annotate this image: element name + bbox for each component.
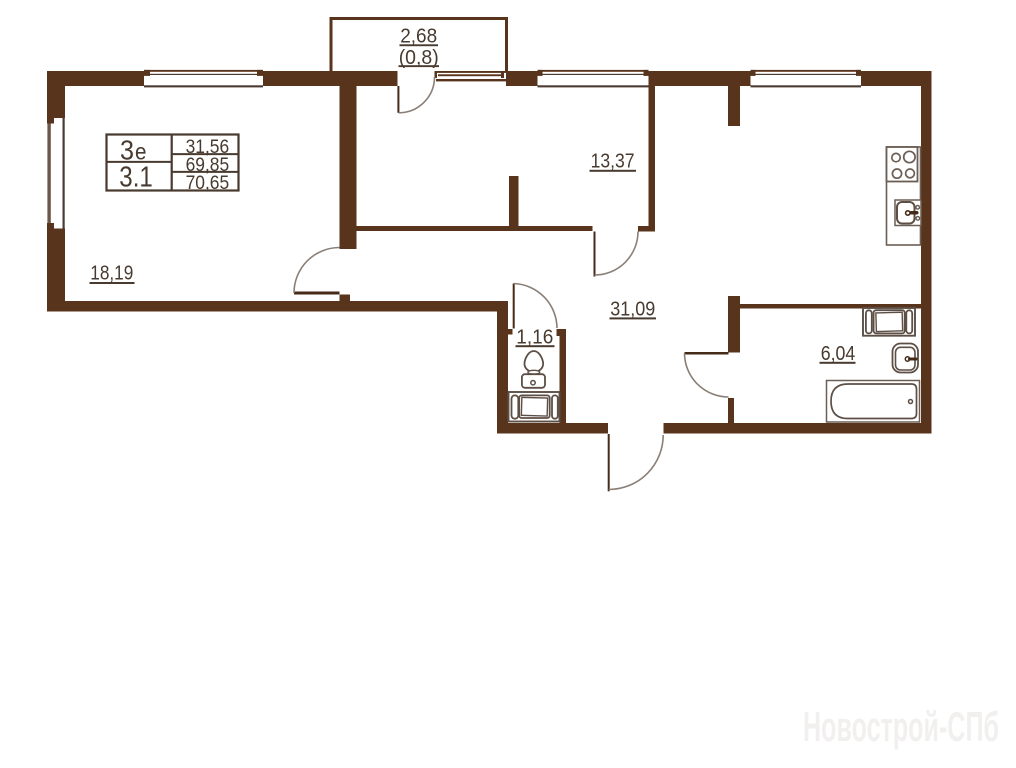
svg-text:13,37: 13,37 (591, 151, 635, 173)
svg-text:2,68: 2,68 (400, 25, 437, 47)
svg-text:18,19: 18,19 (90, 263, 133, 285)
svg-text:31,09: 31,09 (610, 298, 655, 320)
svg-text:Новострой-СПб: Новострой-СПб (803, 703, 999, 750)
svg-text:6,04: 6,04 (821, 343, 856, 365)
svg-text:3.1: 3.1 (119, 161, 153, 193)
svg-text:70,65: 70,65 (186, 172, 230, 194)
